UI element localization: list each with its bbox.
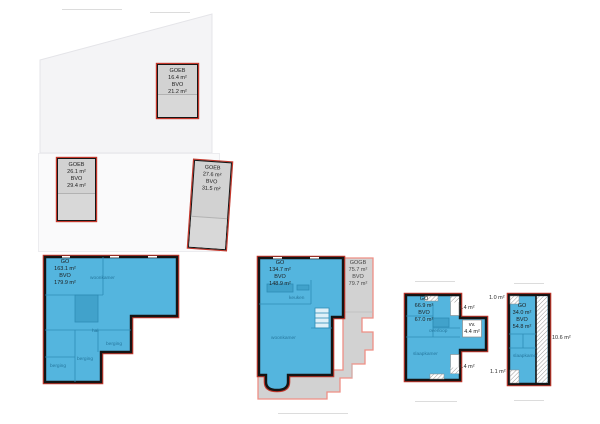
bvo-title: BVO bbox=[158, 82, 197, 89]
area-label-goeb-3: GOEB 27.6 m² BVO 31.5 m² bbox=[193, 164, 231, 195]
bvo-title: BVO bbox=[343, 274, 373, 281]
attic-storage-box-1-inner bbox=[158, 94, 197, 117]
room-label-storage1: berging bbox=[106, 342, 122, 347]
room-label-living: woonkamer bbox=[271, 336, 296, 341]
bvo-area: 179.9 m² bbox=[46, 280, 84, 287]
terrace-hatch-strip bbox=[536, 296, 548, 383]
goeb-title: GOEB bbox=[58, 162, 95, 169]
dimension-tick bbox=[415, 281, 455, 282]
dimension-tick bbox=[150, 12, 190, 13]
go-title: GO bbox=[263, 260, 297, 267]
area-label-third: GO 34.0 m² BVO 54.8 m² bbox=[508, 303, 536, 332]
bvo-area: 54.8 m² bbox=[508, 324, 536, 331]
gogb-title: GOGB bbox=[343, 260, 373, 267]
floor-plan-second: GO 66.9 m² BVO 67.0 m² vv. 4.4 m² overlo… bbox=[403, 290, 491, 385]
room-label-hall: hal bbox=[92, 329, 98, 334]
bvo-title: BVO bbox=[46, 273, 84, 280]
go-area: 66.9 m² bbox=[409, 303, 439, 310]
floor-plan-ground: GO 163.1 m² BVO 179.9 m² woonkamer hal b… bbox=[40, 252, 185, 392]
attic-storage-box-2: GOEB 26.1 m² BVO 29.4 m² bbox=[57, 158, 96, 221]
attic-storage-box-3: GOEB 27.6 m² BVO 31.5 m² bbox=[188, 160, 232, 250]
dormer-top-area-label: 1.0 m² bbox=[489, 295, 505, 301]
floor-plan-first: GO 134.7 m² BVO 148.9 m² GOGB 75.7 m² BV… bbox=[255, 252, 380, 417]
terrace-area-label: 10.6 m² bbox=[552, 335, 571, 341]
dimension-tick bbox=[514, 283, 544, 284]
go-title: GO bbox=[46, 259, 84, 266]
go-area: 134.7 m² bbox=[263, 267, 297, 274]
void-area: 4.4 m² bbox=[462, 329, 482, 336]
goeb-area: 26.1 m² bbox=[58, 169, 95, 176]
ground-dark-room bbox=[75, 295, 98, 322]
area-label-second: GO 66.9 m² BVO 67.0 m² bbox=[409, 296, 439, 325]
room-label-landing: overloop bbox=[429, 329, 447, 334]
bvo-area: 29.4 m² bbox=[58, 183, 95, 190]
bvo-title: BVO bbox=[263, 274, 297, 281]
void-title: vv. bbox=[462, 322, 482, 329]
bvo-title: BVO bbox=[508, 317, 536, 324]
go-title: GO bbox=[409, 296, 439, 303]
floorplan-sheet: { "colors": { "blue": "#54b5de", "dark_b… bbox=[0, 0, 600, 424]
area-label-goeb-1: GOEB 16.4 m² BVO 21.2 m² bbox=[158, 68, 197, 97]
bvo-title: BVO bbox=[409, 310, 439, 317]
first-kitchen-island bbox=[297, 285, 309, 290]
room-label-kitchen: keuken bbox=[289, 296, 304, 301]
dimension-tick bbox=[62, 9, 122, 10]
go-title: GO bbox=[508, 303, 536, 310]
bvo-area: 148.9 m² bbox=[263, 281, 297, 288]
attic-storage-box-2-inner bbox=[58, 193, 95, 220]
void-label: vv. 4.4 m² bbox=[462, 322, 482, 336]
goeb-title: GOEB bbox=[158, 68, 197, 75]
goeb-area: 16.4 m² bbox=[158, 75, 197, 82]
gogb-area: 75.7 m² bbox=[343, 267, 373, 274]
go-area: 34.0 m² bbox=[508, 310, 536, 317]
dormer-bottom-area-label: 1.1 m² bbox=[490, 369, 506, 375]
bottom-edge-notch bbox=[430, 374, 444, 379]
bvo-area: 79.7 m² bbox=[343, 281, 373, 288]
room-label-bedroom: slaapkamer bbox=[413, 352, 438, 357]
area-label-gogb: GOGB 75.7 m² BVO 79.7 m² bbox=[343, 260, 373, 289]
bvo-area: 67.0 m² bbox=[409, 317, 439, 324]
floor-plan-third: GO 34.0 m² BVO 54.8 m² slaapkamer bbox=[505, 292, 559, 388]
room-label-storage2: berging bbox=[77, 357, 93, 362]
dimension-tick bbox=[415, 401, 457, 402]
balcony-bottom-area-label: 1.4 m² bbox=[459, 364, 475, 370]
room-label-bedroom: slaapkamer bbox=[513, 354, 538, 359]
area-label-first: GO 134.7 m² BVO 148.9 m² bbox=[263, 260, 297, 289]
dimension-tick bbox=[514, 400, 544, 401]
area-label-ground: GO 163.1 m² BVO 179.9 m² bbox=[46, 259, 84, 288]
attic-storage-box-3-inner bbox=[189, 216, 227, 250]
dormer-bottom-notch bbox=[510, 370, 519, 383]
balcony-top-hatch bbox=[451, 297, 460, 303]
bvo-area: 31.5 m² bbox=[193, 185, 229, 195]
attic-storage-box-1: GOEB 16.4 m² BVO 21.2 m² bbox=[157, 64, 198, 118]
go-area: 163.1 m² bbox=[46, 266, 84, 273]
balcony-top-area-label: 1.4 m² bbox=[459, 305, 475, 311]
bvo-area: 21.2 m² bbox=[158, 89, 197, 96]
room-label-living: woonkamer bbox=[90, 276, 115, 281]
bvo-title: BVO bbox=[58, 176, 95, 183]
balcony-bottom-hatch bbox=[451, 368, 460, 374]
area-label-goeb-2: GOEB 26.1 m² BVO 29.4 m² bbox=[58, 162, 95, 191]
room-label-storage3: berging bbox=[50, 364, 66, 369]
